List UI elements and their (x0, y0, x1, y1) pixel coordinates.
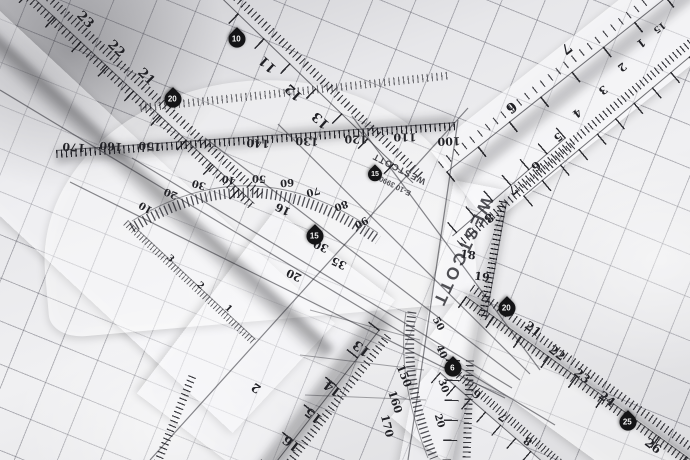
scale-number: 120 (344, 132, 367, 145)
scale-number: 110 (394, 131, 417, 144)
scale-number: 40 (221, 172, 237, 185)
scale-number: 130 (295, 134, 318, 148)
scale-number: 60 (280, 176, 295, 188)
scale-number: 19 (474, 269, 491, 284)
scale-number: 100 (437, 134, 460, 148)
scale-number: 140 (246, 136, 269, 150)
scale-number: 170 (62, 140, 86, 155)
scale-number: 160 (99, 139, 123, 154)
photo-rulers-protractors: 232221 111213 170160150140130120110100 1… (0, 0, 690, 460)
scale-number: 150 (138, 139, 162, 154)
scale-number: 50 (252, 172, 266, 184)
